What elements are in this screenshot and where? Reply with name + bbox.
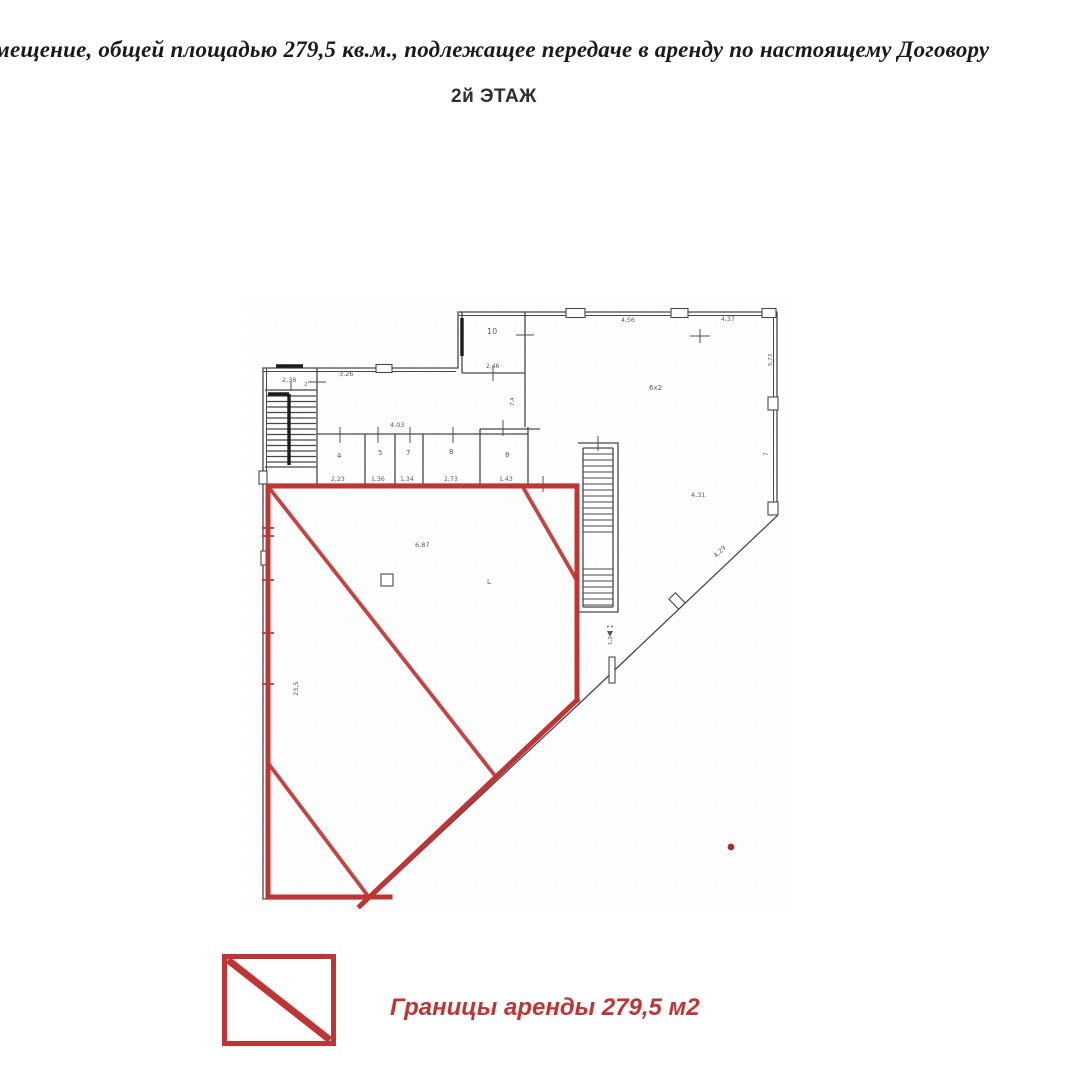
plan-dimension-label: 4,37 [721,316,735,323]
plan-dimension-label: 1,36 [371,476,385,483]
plan-dimension-label: 2 [304,382,308,388]
plan-dimension-label: 8 [505,451,509,459]
plan-dimension-label: L [487,578,491,586]
plan-dimension-label: 7,4 [510,397,516,406]
plan-dimension-label: 23,5 [292,682,300,696]
plan-dimension-label: 7 [406,449,410,457]
plan-dimension-label: 6,87 [415,541,429,549]
plan-dimension-label: 4 [337,452,342,460]
plan-dimension-label: 3,26 [339,370,353,378]
plan-dimension-label: 1,34 [400,476,414,483]
plan-dimension-label: 4,31 [691,491,705,499]
document-page: мещение, общей площадью 279,5 кв.м., под… [0,0,1080,1080]
plan-dimension-label: 1,2 [608,636,614,645]
floor-plan: 2,3623,26102,464,037,4457882,231,361,342… [0,0,1080,1080]
plan-dimension-label: 7 [763,452,770,456]
plan-texture [246,296,791,914]
lease-mark-dot [728,844,735,851]
wall-stub [609,657,615,683]
plan-dimension-label: 1,43 [499,476,513,483]
column-symbol [381,574,393,586]
plan-dimension-label: 6х2 [649,384,662,392]
lease-swatch [222,954,336,1046]
plan-dimension-label: 2,36 [282,376,296,384]
lease-diagonal-icon [227,959,331,1041]
plan-dimension-label: 2,46 [486,363,500,370]
plan-dimension-label: 10 [487,327,497,336]
plan-dimension-label: 4,56 [621,317,635,324]
plan-dimension-label: 5 [378,449,382,457]
plan-dimension-label: 2,73 [444,476,458,483]
plan-dimension-label: 8 [449,448,453,456]
plan-dimension-label: 5,73 [768,353,774,366]
plan-dimension-label: 4,03 [390,421,404,429]
legend-label: Границы аренды 279,5 м2 [390,994,700,1022]
plan-dimension-label: 2,23 [331,476,345,483]
